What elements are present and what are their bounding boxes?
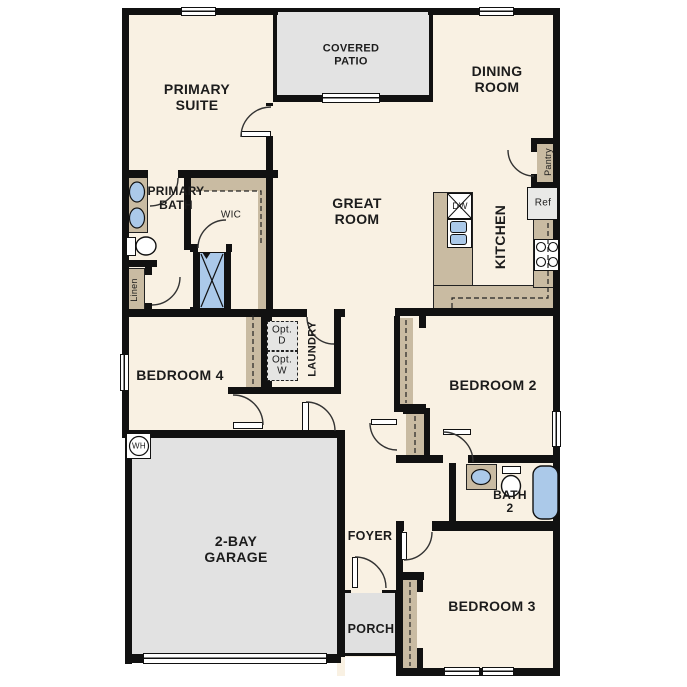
room-label-porch: PORCH (348, 622, 395, 636)
toilet-bowl (136, 237, 156, 255)
room-label-kitchen: KITCHEN (492, 205, 508, 269)
door-arc-garage-entry (306, 402, 335, 431)
door-arc-pantry (508, 150, 534, 176)
room-label-primary-bath: PRIMARY BATH (148, 185, 205, 213)
floor-plan: PRIMARY SUITE COVERED PATIO DINING ROOM … (0, 0, 687, 687)
label-water-heater: WH (132, 441, 146, 450)
room-label-great-room: GREAT ROOM (332, 195, 381, 227)
room-label-primary-suite: PRIMARY SUITE (164, 81, 230, 113)
label-pantry: Pantry (543, 148, 553, 176)
shower-entry-notch (202, 252, 211, 259)
label-linen: Linen (129, 278, 139, 302)
room-label-bedroom3: BEDROOM 3 (448, 598, 536, 614)
door-arc-wic (198, 220, 226, 248)
bath2-sink (472, 470, 491, 485)
label-wic: WIC (221, 209, 241, 221)
room-label-laundry: LAUNDRY (307, 321, 320, 376)
label-opt-dryer: Opt. D (272, 326, 292, 347)
room-label-bedroom4: BEDROOM 4 (136, 367, 224, 383)
annotation-overlay (0, 0, 687, 687)
door-arc-bedroom2 (370, 423, 397, 450)
bathtub (533, 466, 558, 519)
label-opt-washer: Opt. W (272, 356, 292, 377)
room-label-bedroom2: BEDROOM 2 (449, 377, 537, 393)
room-label-garage: 2-BAY GARAGE (204, 533, 267, 565)
label-refrigerator: Ref (535, 197, 551, 209)
burner (537, 243, 546, 252)
burner (537, 258, 546, 267)
door-arc-bedroom3 (404, 532, 432, 560)
door-arc-bedroom4 (233, 395, 263, 425)
primary-sink (130, 208, 145, 228)
burner (549, 243, 558, 252)
door-arc-bath2 (443, 432, 473, 462)
primary-sink (130, 182, 145, 202)
door-arc-linen (152, 277, 180, 305)
room-label-bath2: BATH 2 (493, 489, 527, 515)
door-arc-front (355, 557, 386, 588)
burner (549, 258, 558, 267)
room-label-covered-patio: COVERED PATIO (323, 42, 380, 67)
room-label-foyer: FOYER (348, 529, 393, 543)
door-arc-primary-suite (241, 107, 271, 137)
label-dishwasher: DW (452, 201, 468, 211)
room-label-dining-room: DINING ROOM (472, 63, 523, 95)
